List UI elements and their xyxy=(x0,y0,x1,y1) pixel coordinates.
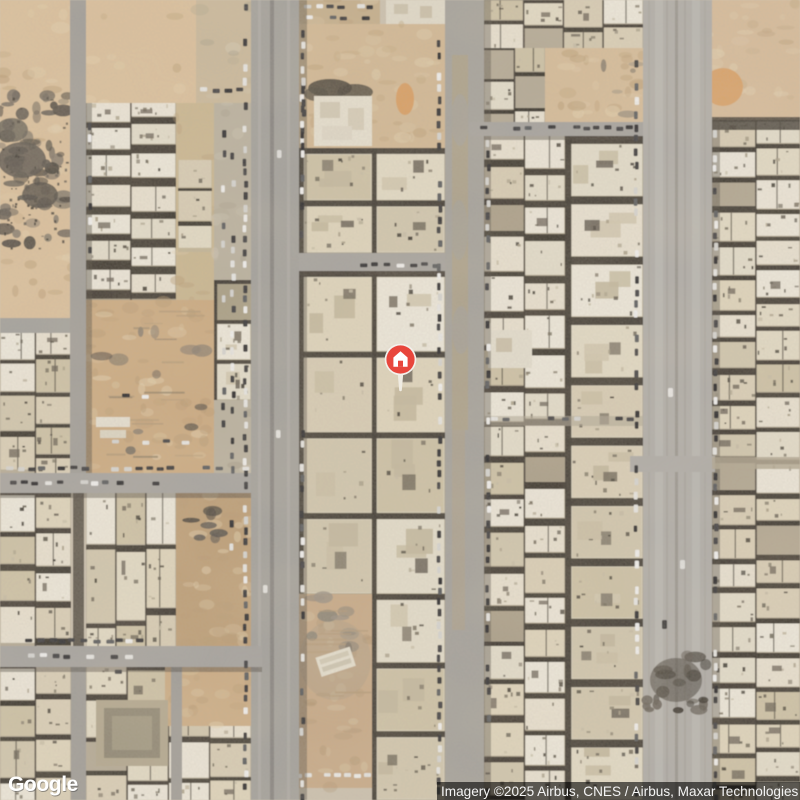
svg-text:Google: Google xyxy=(8,773,78,796)
svg-text:Imagery ©2025 Airbus, CNES / A: Imagery ©2025 Airbus, CNES / Airbus, Max… xyxy=(441,784,799,799)
